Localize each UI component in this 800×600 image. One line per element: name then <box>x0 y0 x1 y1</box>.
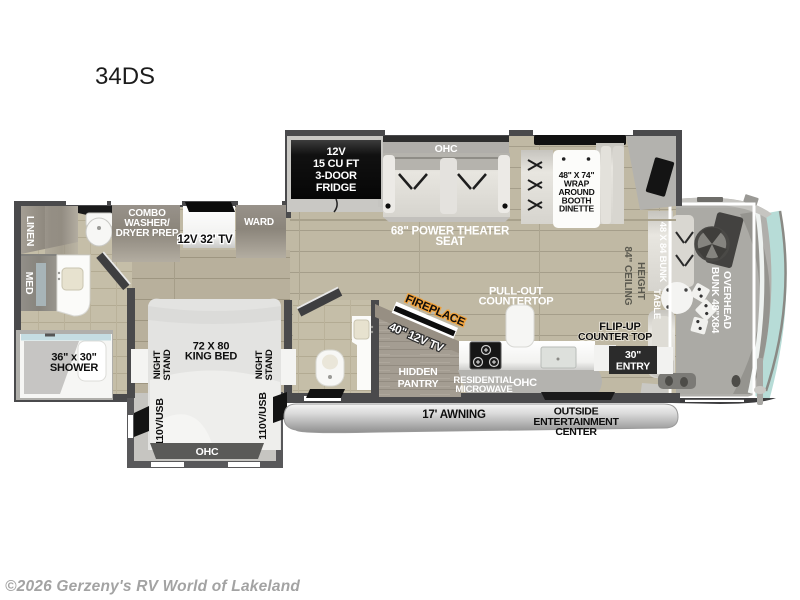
svg-text:3-DOOR: 3-DOOR <box>315 170 357 182</box>
svg-text:COUNTERTOP: COUNTERTOP <box>479 296 554 308</box>
svg-text:PANTRY: PANTRY <box>398 378 439 390</box>
svg-text:LINEN: LINEN <box>24 216 36 247</box>
svg-text:KING BED: KING BED <box>185 351 237 363</box>
svg-text:12V: 12V <box>327 146 347 158</box>
svg-text:17' AWNING: 17' AWNING <box>422 409 486 421</box>
svg-text:BUNK 48"X84: BUNK 48"X84 <box>709 267 721 334</box>
svg-text:DRYER PREP: DRYER PREP <box>116 228 179 239</box>
svg-text:110V/USB: 110V/USB <box>257 392 269 440</box>
svg-text:HEIGHT: HEIGHT <box>635 262 646 300</box>
svg-text:STAND: STAND <box>162 349 173 380</box>
svg-text:OHC: OHC <box>513 377 537 389</box>
svg-text:110V/USB: 110V/USB <box>154 398 166 446</box>
svg-text:DINETTE: DINETTE <box>559 204 594 214</box>
svg-text:©2026 Gerzeny's RV World of La: ©2026 Gerzeny's RV World of Lakeland <box>5 578 300 595</box>
svg-text:FRIDGE: FRIDGE <box>316 182 356 194</box>
svg-text:48 X 84 BUNK: 48 X 84 BUNK <box>657 222 668 283</box>
svg-text:34DS: 34DS <box>95 63 155 90</box>
svg-text:MICROWAVE: MICROWAVE <box>455 384 512 395</box>
svg-text:OHC: OHC <box>196 446 219 458</box>
svg-text:12V 32' TV: 12V 32' TV <box>177 234 233 246</box>
svg-text:COUNTER TOP: COUNTER TOP <box>578 331 652 343</box>
svg-text:TABLE: TABLE <box>651 289 662 319</box>
svg-text:WARD: WARD <box>244 217 274 228</box>
svg-text:STAND: STAND <box>264 349 275 380</box>
svg-text:15 CU FT: 15 CU FT <box>313 158 360 170</box>
svg-text:30": 30" <box>625 349 641 361</box>
svg-text:CENTER: CENTER <box>555 426 597 438</box>
svg-text:SHOWER: SHOWER <box>50 362 99 374</box>
svg-text:MED: MED <box>23 272 35 295</box>
svg-text:84" CEILING: 84" CEILING <box>622 246 633 305</box>
svg-text:ENTRY: ENTRY <box>616 361 650 373</box>
svg-text:SEAT: SEAT <box>435 236 464 248</box>
svg-text:OVERHEAD: OVERHEAD <box>721 271 733 330</box>
svg-text:HIDDEN: HIDDEN <box>398 366 437 378</box>
